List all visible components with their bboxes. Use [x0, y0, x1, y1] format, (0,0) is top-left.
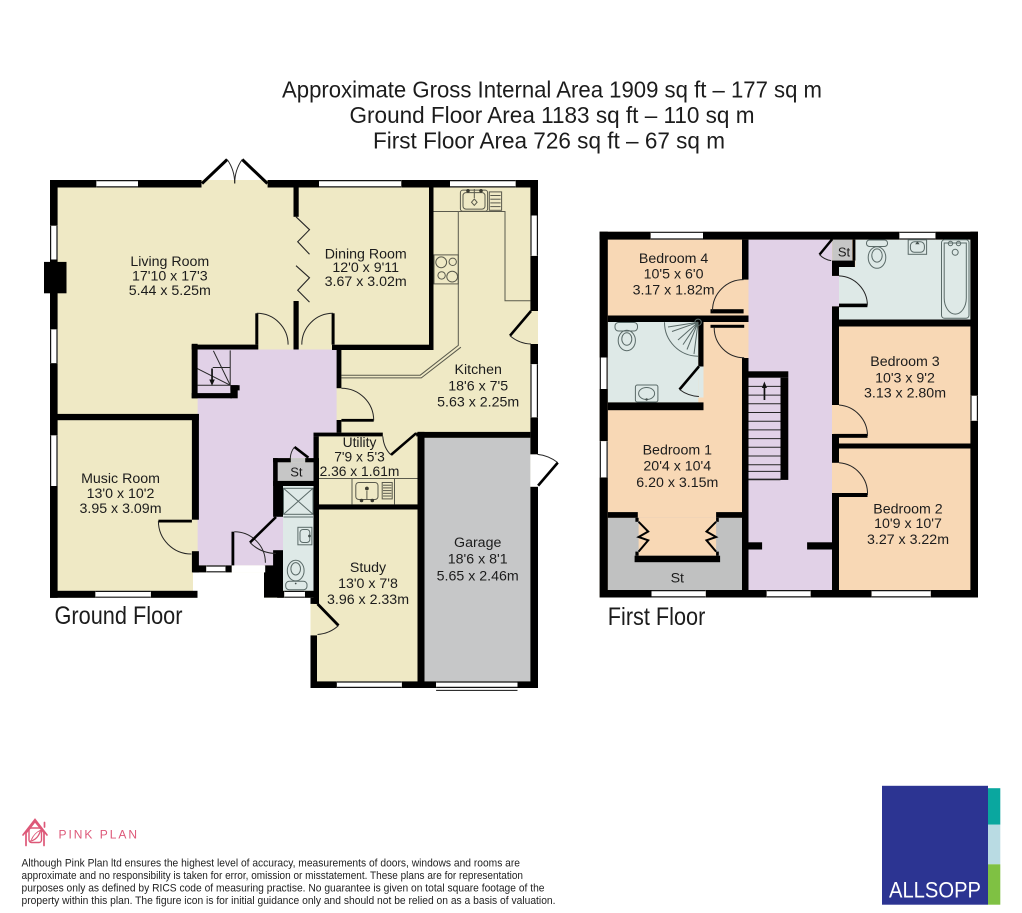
svg-text:17'10 x 17'3: 17'10 x 17'3 — [132, 269, 208, 285]
svg-text:7'9 x 5'3: 7'9 x 5'3 — [334, 449, 385, 464]
svg-text:Kitchen: Kitchen — [455, 362, 502, 378]
svg-text:St: St — [838, 245, 851, 260]
svg-text:First Floor Area 726 sq ft – 6: First Floor Area 726 sq ft – 67 sq m — [373, 128, 725, 154]
svg-text:Living Room: Living Room — [130, 254, 209, 270]
svg-text:18'6 x 7'5: 18'6 x 7'5 — [448, 379, 508, 395]
svg-text:3.95 x 3.09m: 3.95 x 3.09m — [79, 501, 161, 517]
svg-text:Garage: Garage — [454, 535, 501, 551]
svg-text:2.36 x 1.61m: 2.36 x 1.61m — [320, 464, 400, 479]
svg-text:St: St — [671, 570, 684, 586]
svg-text:6.20 x 3.15m: 6.20 x 3.15m — [636, 475, 718, 491]
svg-text:10'3 x 9'2: 10'3 x 9'2 — [875, 371, 935, 387]
svg-text:First Floor: First Floor — [608, 603, 706, 631]
svg-text:Utility: Utility — [343, 435, 377, 450]
svg-text:Bedroom 4: Bedroom 4 — [639, 251, 709, 267]
svg-text:5.44 x 5.25m: 5.44 x 5.25m — [129, 283, 211, 299]
svg-text:3.96 x 2.33m: 3.96 x 2.33m — [327, 592, 409, 608]
svg-text:Although Pink Plan ltd ensures: Although Pink Plan ltd ensures the highe… — [22, 858, 521, 870]
svg-text:Ground Floor Area 1183 sq ft –: Ground Floor Area 1183 sq ft – 110 sq m — [350, 102, 755, 128]
svg-text:13'0 x 7'8: 13'0 x 7'8 — [338, 576, 398, 592]
svg-text:3.13 x 2.80m: 3.13 x 2.80m — [864, 386, 946, 402]
svg-text:purposes only as defined by RI: purposes only as defined by RICS code of… — [22, 883, 545, 895]
svg-text:Ground Floor: Ground Floor — [55, 602, 183, 630]
svg-text:3.67 x 3.02m: 3.67 x 3.02m — [325, 274, 407, 290]
svg-text:13'0 x 10'2: 13'0 x 10'2 — [87, 486, 155, 502]
svg-text:Study: Study — [350, 560, 387, 576]
svg-text:18'6 x 8'1: 18'6 x 8'1 — [448, 552, 508, 568]
svg-text:10'5 x 6'0: 10'5 x 6'0 — [644, 266, 704, 282]
svg-text:ALLSOPP: ALLSOPP — [889, 878, 981, 903]
svg-text:property within this plan. The: property within this plan. The figure ic… — [22, 895, 556, 907]
svg-text:3.27 x 3.22m: 3.27 x 3.22m — [867, 532, 949, 548]
svg-text:5.63 x 2.25m: 5.63 x 2.25m — [437, 394, 519, 410]
svg-text:20'4 x 10'4: 20'4 x 10'4 — [643, 459, 711, 475]
svg-text:10'9 x 10'7: 10'9 x 10'7 — [874, 516, 942, 532]
svg-text:PINK PLAN: PINK PLAN — [59, 828, 138, 842]
svg-text:Approximate Gross Internal Are: Approximate Gross Internal Area 1909 sq … — [282, 77, 822, 103]
svg-text:3.17 x 1.82m: 3.17 x 1.82m — [633, 282, 715, 298]
svg-text:Bedroom 3: Bedroom 3 — [870, 354, 940, 370]
svg-text:Music Room: Music Room — [81, 471, 160, 487]
svg-text:St: St — [290, 465, 303, 480]
svg-text:Bedroom 1: Bedroom 1 — [643, 443, 713, 459]
svg-text:5.65 x 2.46m: 5.65 x 2.46m — [437, 568, 519, 584]
svg-text:approximate and no responsibil: approximate and no responsibility is tak… — [22, 870, 524, 882]
